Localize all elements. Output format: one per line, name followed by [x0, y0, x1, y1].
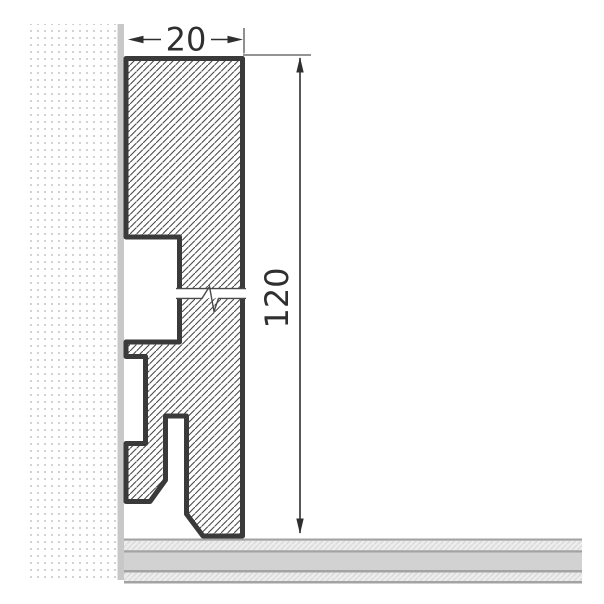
floor-divider-line-1	[124, 550, 582, 552]
floor	[124, 539, 582, 584]
skirting-profile-technical-drawing: 20 120	[0, 0, 604, 604]
arrowhead-up-icon	[296, 57, 303, 73]
width-dimension-label: 20	[166, 21, 207, 59]
height-dimension: 120	[243, 55, 311, 534]
drawing-canvas: 20 120	[0, 0, 604, 604]
floor-bottom-line	[124, 581, 582, 584]
wall	[26, 24, 124, 580]
arrowhead-down-icon	[296, 519, 303, 535]
floor-top-line	[124, 539, 582, 541]
floor-upper-hatch-lines	[124, 541, 582, 550]
width-dimension: 20	[128, 21, 244, 59]
floor-solid-band	[124, 553, 582, 571]
wall-surface-strip	[118, 24, 125, 580]
height-dimension-label: 120	[258, 267, 296, 328]
floor-lower-hatch-lines	[124, 573, 582, 582]
floor-divider-line-2	[124, 570, 582, 573]
wall-texture	[26, 24, 118, 580]
arrowhead-left-icon	[128, 36, 144, 43]
arrowhead-right-icon	[228, 36, 244, 43]
